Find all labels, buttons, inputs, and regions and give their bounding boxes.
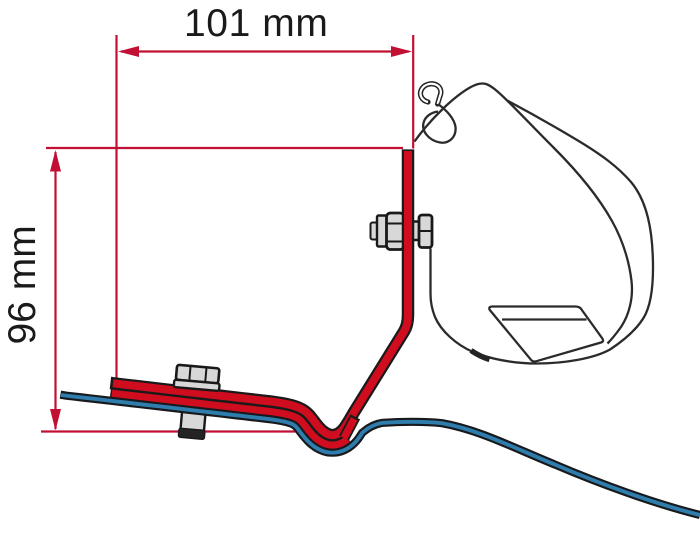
svg-text:96 mm: 96 mm <box>1 225 44 344</box>
svg-text:101 mm: 101 mm <box>184 2 328 45</box>
